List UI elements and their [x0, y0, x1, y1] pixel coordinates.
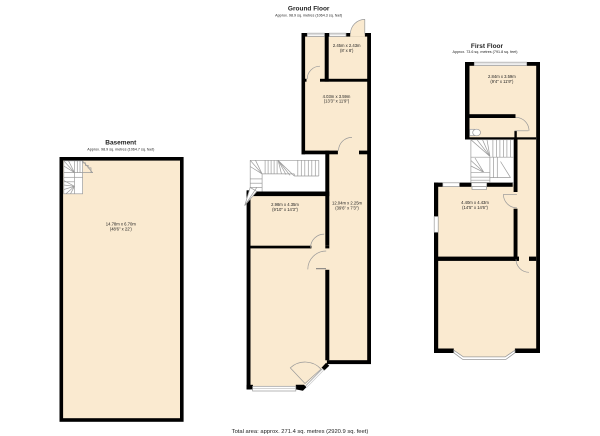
svg-text:Approx. 98.9 sq. metres (1064.: Approx. 98.9 sq. metres (1064.7 sq. feet…	[87, 148, 154, 152]
svg-text:(14'5" x 14'6"): (14'5" x 14'6")	[462, 205, 488, 210]
svg-text:Basement: Basement	[105, 140, 137, 147]
svg-text:(9'4" x 11'9"): (9'4" x 11'9")	[490, 79, 514, 84]
svg-text:Approx. 73.6 sq. metres (791.8: Approx. 73.6 sq. metres (791.8 sq. feet)	[453, 50, 518, 54]
svg-text:First Floor: First Floor	[471, 43, 504, 50]
svg-text:Approx. 98.9 sq. metres (1064.: Approx. 98.9 sq. metres (1064.3 sq. feet…	[275, 13, 342, 17]
svg-text:(39'6" x 7'3"): (39'6" x 7'3")	[335, 205, 359, 210]
svg-text:(13'3" x 11'9"): (13'3" x 11'9")	[324, 99, 350, 104]
svg-text:(8' x 8'): (8' x 8')	[340, 48, 354, 53]
svg-text:Total area: approx. 271.4 sq.: Total area: approx. 271.4 sq. metres (29…	[232, 429, 369, 435]
svg-text:Ground Floor: Ground Floor	[288, 5, 330, 12]
svg-text:(9'10" x 14'3"): (9'10" x 14'3")	[272, 207, 298, 212]
svg-text:(48'6" x 22'): (48'6" x 22')	[110, 226, 133, 231]
